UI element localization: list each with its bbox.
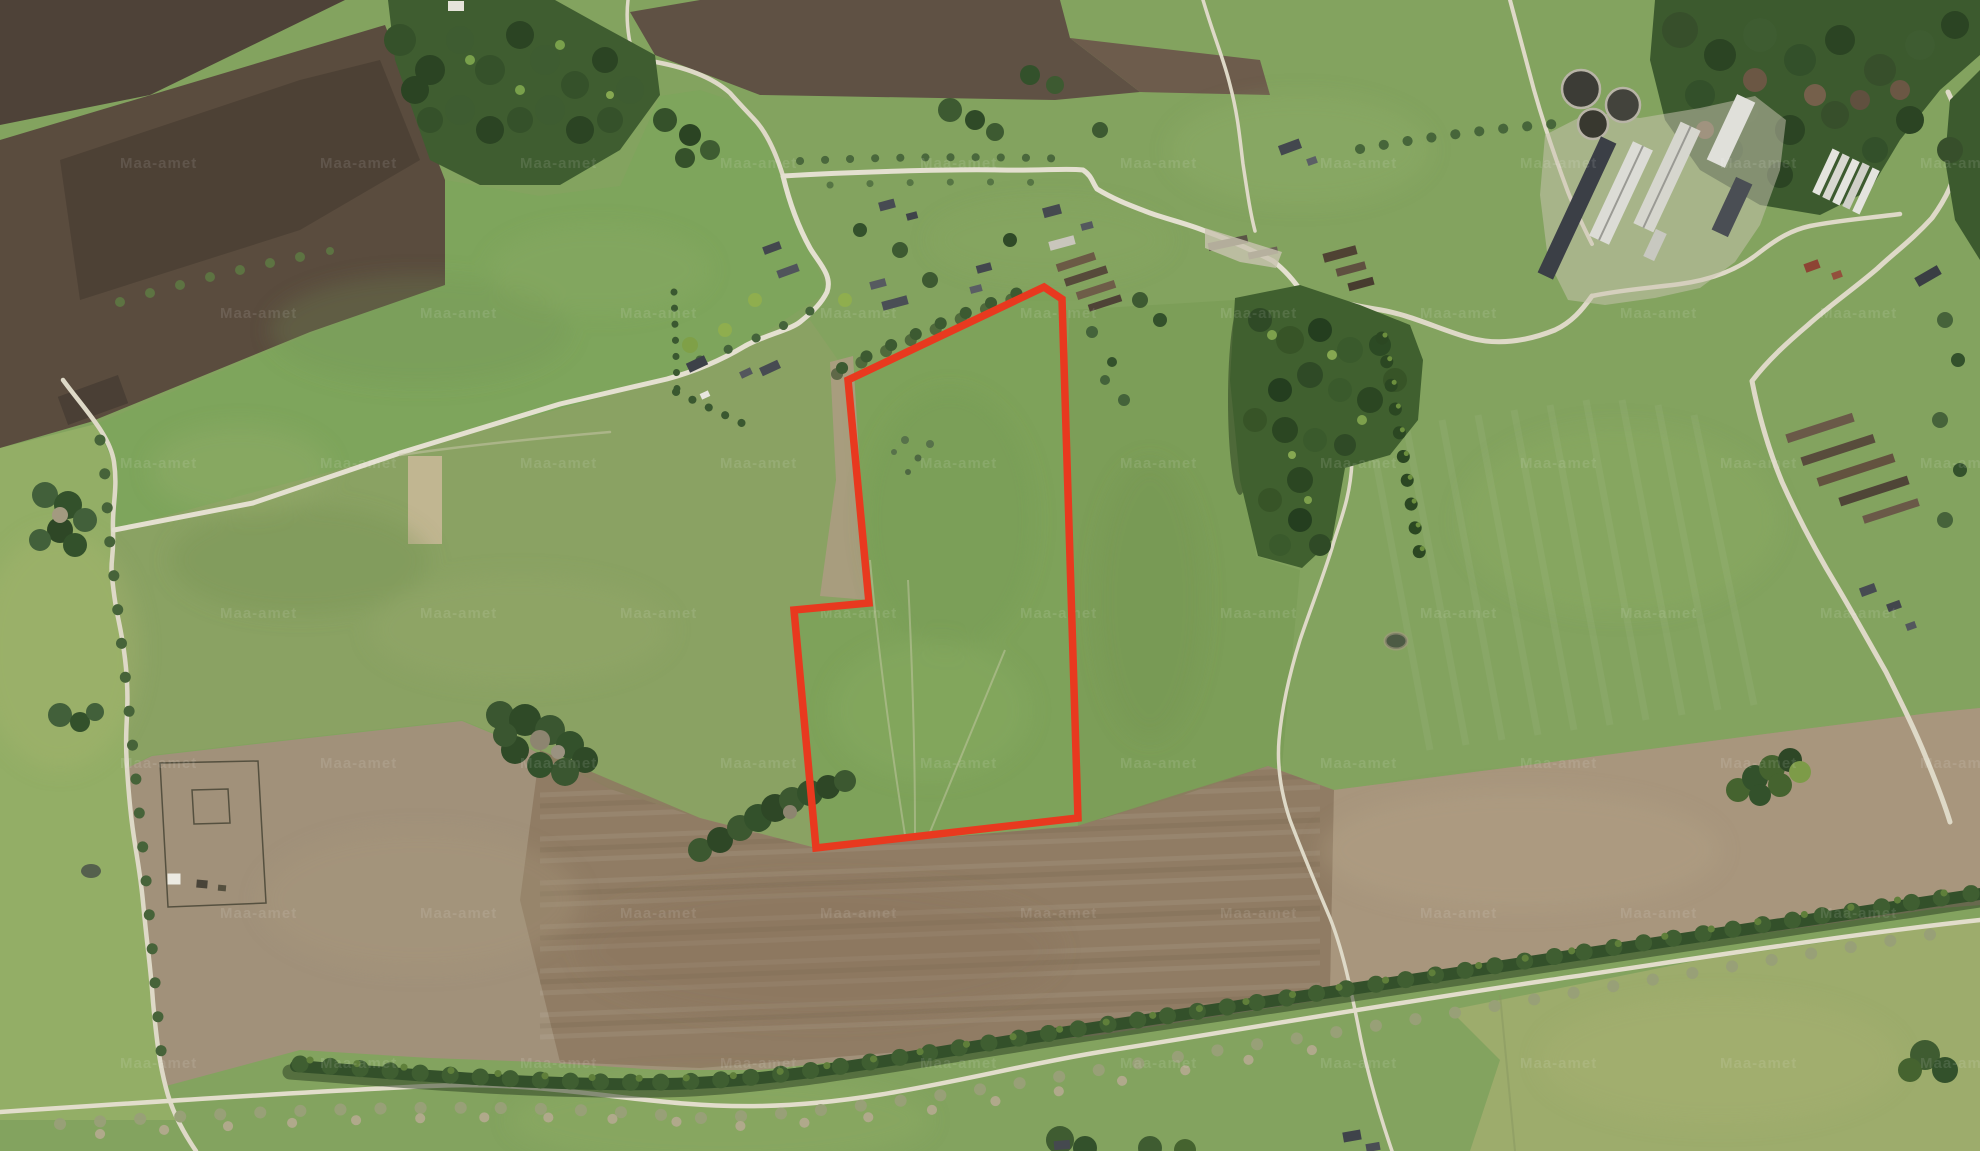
maa-amet-watermark: Maa-amet: [1520, 455, 1597, 472]
maa-amet-watermark: Maa-amet: [320, 455, 397, 472]
maa-amet-watermark: Maa-amet: [220, 305, 297, 322]
maa-amet-watermark: Maa-amet: [920, 1055, 997, 1072]
maa-amet-watermark: Maa-amet: [1420, 305, 1497, 322]
maa-amet-watermark: Maa-amet: [620, 305, 697, 322]
maa-amet-watermark: Maa-amet: [920, 755, 997, 772]
maa-amet-watermark: Maa-amet: [220, 905, 297, 922]
maa-amet-watermark: Maa-amet: [920, 155, 997, 172]
maa-amet-watermark: Maa-amet: [1720, 455, 1797, 472]
maa-amet-watermark: Maa-amet: [1320, 755, 1397, 772]
maa-amet-watermark: Maa-amet: [1520, 755, 1597, 772]
maa-amet-watermark: Maa-amet: [320, 755, 397, 772]
maa-amet-watermark: Maa-amet: [720, 155, 797, 172]
slurry-tank: [1562, 70, 1600, 108]
maa-amet-watermark: Maa-amet: [1920, 455, 1980, 472]
aerial-map[interactable]: Maa-ametMaa-ametMaa-ametMaa-ametMaa-amet…: [0, 0, 1980, 1151]
maa-amet-watermark: Maa-amet: [1320, 1055, 1397, 1072]
maa-amet-watermark: Maa-amet: [1120, 755, 1197, 772]
maa-amet-watermark: Maa-amet: [720, 1055, 797, 1072]
maa-amet-watermark: Maa-amet: [120, 155, 197, 172]
maa-amet-watermark: Maa-amet: [1820, 605, 1897, 622]
maa-amet-watermark: Maa-amet: [1520, 155, 1597, 172]
bare-patch: [408, 456, 442, 544]
maa-amet-watermark: Maa-amet: [620, 905, 697, 922]
maa-amet-watermark: Maa-amet: [420, 605, 497, 622]
maa-amet-watermark: Maa-amet: [1720, 1055, 1797, 1072]
maa-amet-watermark: Maa-amet: [520, 1055, 597, 1072]
maa-amet-watermark: Maa-amet: [1420, 605, 1497, 622]
maa-amet-watermark: Maa-amet: [1720, 755, 1797, 772]
maa-amet-watermark: Maa-amet: [120, 755, 197, 772]
maa-amet-watermark: Maa-amet: [1920, 1055, 1980, 1072]
maa-amet-watermark: Maa-amet: [1220, 305, 1297, 322]
maa-amet-watermark: Maa-amet: [1620, 305, 1697, 322]
maa-amet-watermark: Maa-amet: [1020, 905, 1097, 922]
maa-amet-watermark: Maa-amet: [520, 455, 597, 472]
maa-amet-watermark: Maa-amet: [1120, 455, 1197, 472]
maa-amet-watermark: Maa-amet: [1620, 905, 1697, 922]
paddock-shed-small: [218, 885, 226, 892]
maa-amet-watermark: Maa-amet: [1720, 155, 1797, 172]
maa-amet-watermark: Maa-amet: [420, 305, 497, 322]
maa-amet-watermark: Maa-amet: [1320, 155, 1397, 172]
maa-amet-watermark: Maa-amet: [1520, 1055, 1597, 1072]
paddock-tent: [168, 874, 181, 885]
pond-west: [81, 864, 101, 878]
maa-amet-watermark: Maa-amet: [520, 155, 597, 172]
maa-amet-watermark: Maa-amet: [1920, 155, 1980, 172]
maa-amet-watermark: Maa-amet: [220, 605, 297, 622]
maa-amet-watermark: Maa-amet: [1120, 155, 1197, 172]
maa-amet-watermark: Maa-amet: [1320, 455, 1397, 472]
maa-amet-watermark: Maa-amet: [1820, 905, 1897, 922]
maa-amet-watermark: Maa-amet: [520, 755, 597, 772]
maa-amet-watermark: Maa-amet: [1120, 1055, 1197, 1072]
maa-amet-watermark: Maa-amet: [920, 455, 997, 472]
orthophoto-canvas: Maa-ametMaa-ametMaa-ametMaa-ametMaa-amet…: [0, 0, 1980, 1151]
maa-amet-watermark: Maa-amet: [120, 1055, 197, 1072]
maa-amet-watermark: Maa-amet: [620, 605, 697, 622]
maa-amet-watermark: Maa-amet: [1420, 905, 1497, 922]
maa-amet-watermark: Maa-amet: [420, 905, 497, 922]
maa-amet-watermark: Maa-amet: [820, 905, 897, 922]
maa-amet-watermark: Maa-amet: [320, 155, 397, 172]
maa-amet-watermark: Maa-amet: [1820, 305, 1897, 322]
maa-amet-watermark: Maa-amet: [120, 455, 197, 472]
maa-amet-watermark: Maa-amet: [720, 755, 797, 772]
maa-amet-watermark: Maa-amet: [1020, 605, 1097, 622]
paddock-shed: [196, 880, 208, 889]
pond-east: [1385, 633, 1407, 649]
maa-amet-watermark: Maa-amet: [1220, 905, 1297, 922]
maa-amet-watermark: Maa-amet: [1220, 605, 1297, 622]
slurry-tank: [1578, 109, 1608, 139]
maa-amet-watermark: Maa-amet: [1620, 605, 1697, 622]
maa-amet-watermark: Maa-amet: [720, 455, 797, 472]
maa-amet-watermark: Maa-amet: [320, 1055, 397, 1072]
maa-amet-watermark: Maa-amet: [1920, 755, 1980, 772]
slurry-tank: [1606, 88, 1640, 122]
maa-amet-watermark: Maa-amet: [820, 305, 897, 322]
